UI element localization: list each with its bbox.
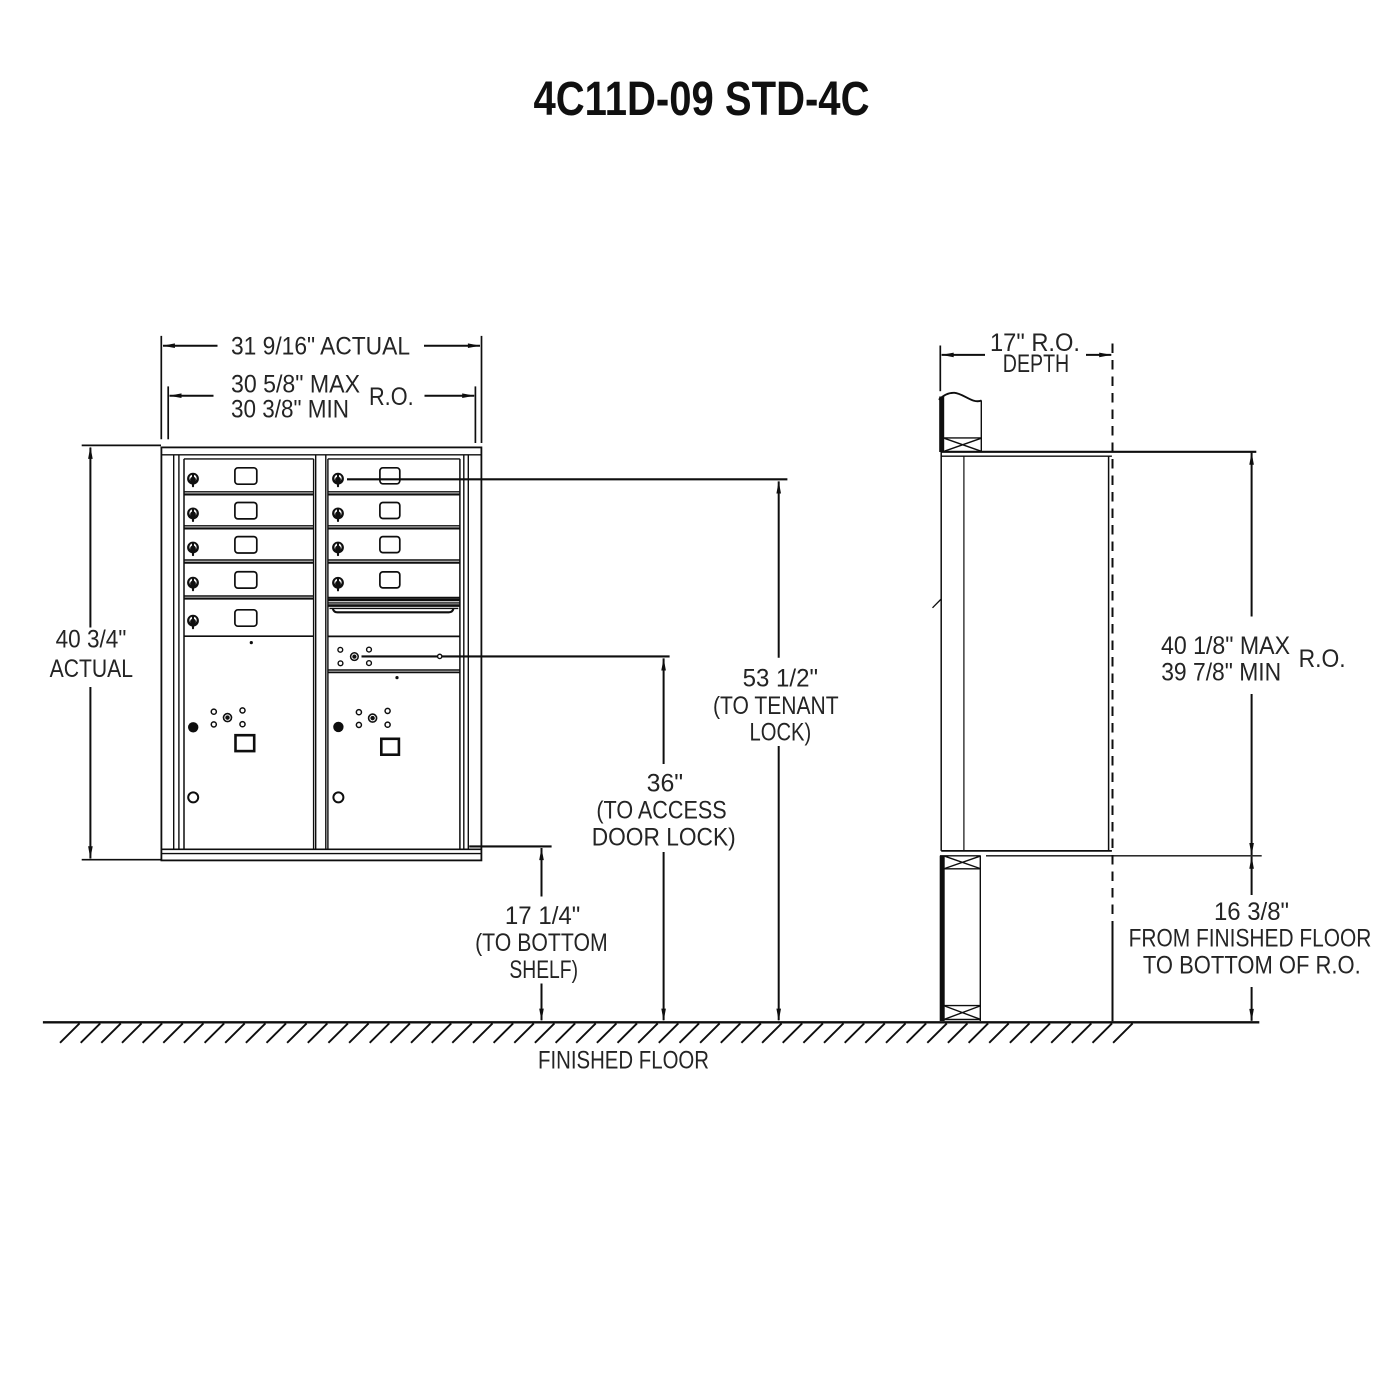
svg-text:40 1/8" MAX: 40 1/8" MAX — [1161, 632, 1290, 660]
svg-text:30 5/8" MAX: 30 5/8" MAX — [231, 370, 360, 398]
svg-text:FINISHED FLOOR: FINISHED FLOOR — [538, 1047, 709, 1075]
svg-text:FROM FINISHED FLOOR: FROM FINISHED FLOOR — [1129, 925, 1372, 953]
svg-text:LOCK): LOCK) — [750, 719, 812, 747]
svg-text:SHELF): SHELF) — [509, 956, 578, 984]
svg-text:R.O.: R.O. — [1299, 645, 1346, 673]
svg-text:31 9/16" ACTUAL: 31 9/16" ACTUAL — [231, 333, 410, 361]
svg-text:DEPTH: DEPTH — [1003, 350, 1069, 378]
svg-text:30 3/8" MIN: 30 3/8" MIN — [231, 395, 349, 423]
svg-text:(TO BOTTOM: (TO BOTTOM — [475, 929, 608, 957]
svg-text:36": 36" — [647, 770, 684, 798]
svg-text:(TO TENANT: (TO TENANT — [713, 692, 839, 720]
svg-text:17 1/4": 17 1/4" — [505, 902, 580, 930]
svg-text:R.O.: R.O. — [369, 383, 414, 411]
svg-text:ACTUAL: ACTUAL — [50, 655, 133, 683]
svg-text:4C11D-09 STD-4C: 4C11D-09 STD-4C — [534, 72, 870, 126]
svg-text:39 7/8" MIN: 39 7/8" MIN — [1161, 659, 1281, 687]
svg-text:16 3/8": 16 3/8" — [1214, 898, 1289, 926]
svg-text:(TO ACCESS: (TO ACCESS — [596, 797, 726, 825]
svg-text:53 1/2": 53 1/2" — [743, 665, 818, 693]
svg-text:DOOR LOCK): DOOR LOCK) — [592, 824, 736, 852]
svg-text:40 3/4": 40 3/4" — [56, 626, 127, 654]
svg-text:TO BOTTOM OF R.O.: TO BOTTOM OF R.O. — [1143, 951, 1361, 979]
